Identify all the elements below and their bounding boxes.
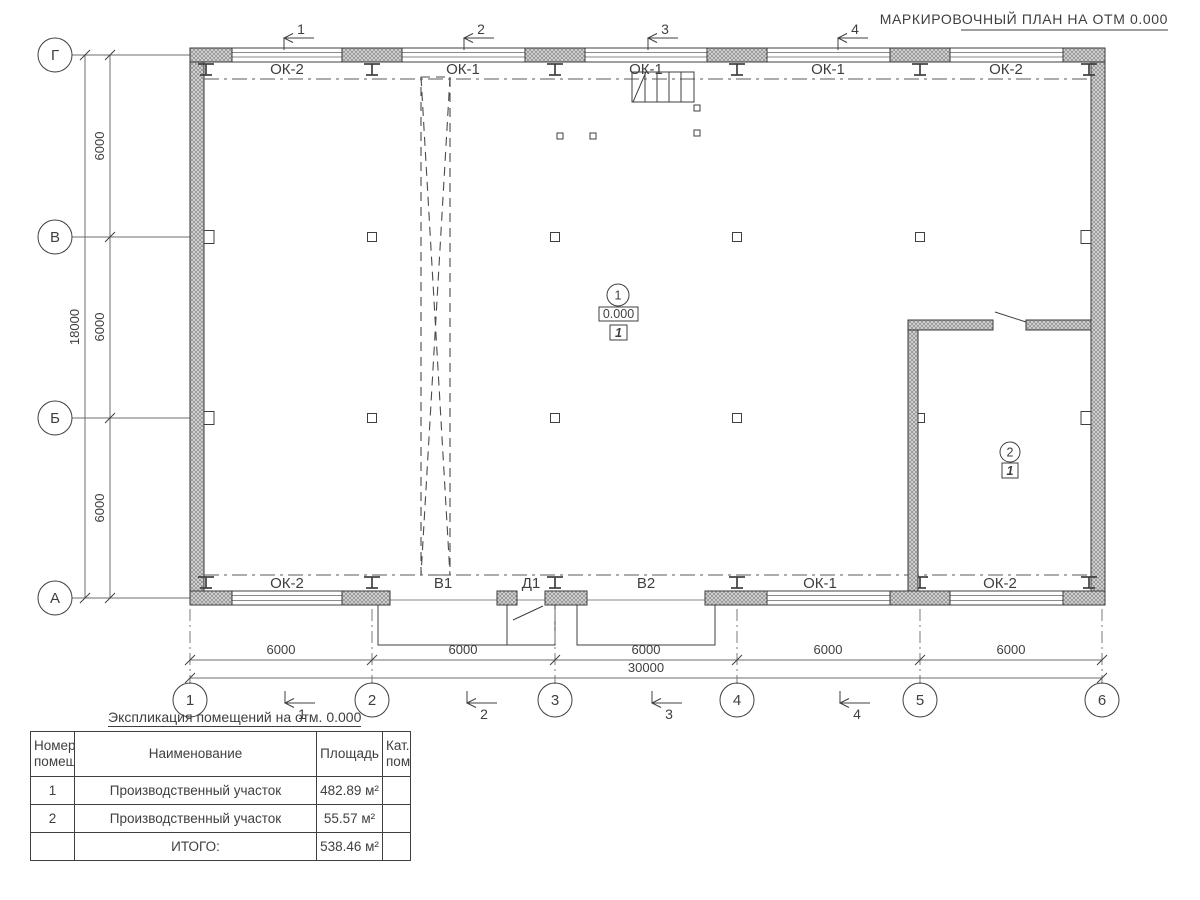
section-number: 4 (851, 21, 859, 37)
top-wall-piers (190, 48, 1105, 62)
dim-left-total: 18000 (67, 309, 82, 345)
loading-ramps (378, 605, 715, 645)
opening-label: ОК-2 (989, 61, 1023, 78)
col-header-category: Кат. пом. (383, 732, 411, 777)
partition-walls (908, 312, 1091, 591)
section-marker: 1 (284, 21, 314, 50)
axis-col-label-1: 1 (186, 692, 194, 709)
col-header-area: Площадь (317, 732, 383, 777)
ibeam-icon (364, 64, 380, 75)
floor-plan-sheet: МАРКИРОВОЧНЫЙ ПЛАН НА ОТМ 0.000 Г В Б А … (0, 0, 1200, 900)
opening-label: В2 (637, 575, 655, 592)
door-swing-line (513, 606, 543, 620)
opening-label: ОК-2 (270, 61, 304, 78)
opening-label: В1 (434, 575, 452, 592)
dim-bottom-0: 6000 (267, 642, 296, 657)
section-marker: 3 (652, 691, 682, 722)
col-header-number: Номер помещ. (31, 732, 75, 777)
section-number: 2 (480, 706, 488, 722)
bottom-dimensions: 6000 6000 6000 6000 6000 30000 (185, 609, 1107, 684)
cell-number-empty (31, 833, 75, 861)
opening-labels-bottom: ОК-2 В1 Д1 В2 ОК-1 ОК-2 (270, 575, 1017, 592)
axis-row-label-a: А (50, 590, 60, 607)
opening-label: ОК-1 (811, 61, 845, 78)
dim-bottom-2: 6000 (632, 642, 661, 657)
left-dimensions: 6000 6000 6000 18000 (67, 50, 115, 603)
cell-area: 55.57 м² (317, 805, 383, 833)
ibeam-icon (729, 64, 745, 75)
axis-col-label-4: 4 (733, 692, 741, 709)
col-header-name: Наименование (75, 732, 317, 777)
dim-bottom-total: 30000 (628, 660, 664, 675)
room-schedule-table: Номер помещ. Наименование Площадь Кат. п… (30, 731, 411, 861)
room-schedule: Номер помещ. Наименование Площадь Кат. п… (30, 731, 411, 861)
cell-name: Производственный участок (75, 777, 317, 805)
cell-name: Производственный участок (75, 805, 317, 833)
section-number: 3 (665, 706, 673, 722)
grid-row-axes: Г В Б А (38, 38, 190, 615)
section-number: 2 (477, 21, 485, 37)
table-header-row: Номер помещ. Наименование Площадь Кат. п… (31, 732, 411, 777)
dim-left-0: 6000 (92, 132, 107, 161)
zone-value: 1 (615, 326, 622, 340)
page-title: МАРКИРОВОЧНЫЙ ПЛАН НА ОТМ 0.000 (880, 10, 1168, 27)
cell-area: 482.89 м² (317, 777, 383, 805)
dim-left-1: 6000 (92, 313, 107, 342)
axis-col-label-5: 5 (916, 692, 924, 709)
cell-number: 2 (31, 805, 75, 833)
cell-category-empty (383, 833, 411, 861)
section-marker: 4 (838, 21, 868, 50)
interior-columns (368, 105, 925, 423)
opening-label: Д1 (522, 575, 541, 592)
table-row: 2 Производственный участок 55.57 м² (31, 805, 411, 833)
ibeam-icon (364, 577, 380, 588)
cell-category (383, 805, 411, 833)
dim-bottom-4: 6000 (997, 642, 1026, 657)
bottom-wall-band (190, 591, 1105, 605)
ibeam-icon (912, 64, 928, 75)
section-number: 4 (853, 706, 861, 722)
opening-label: ОК-2 (983, 575, 1017, 592)
axis-col-label-6: 6 (1098, 692, 1106, 709)
table-row: 1 Производственный участок 482.89 м² (31, 777, 411, 805)
dim-bottom-1: 6000 (449, 642, 478, 657)
door-swing-line (995, 312, 1026, 322)
total-label: ИТОГО: (75, 833, 317, 861)
room1-marker: 1 0.000 1 (599, 284, 638, 340)
cell-category (383, 777, 411, 805)
floor-plan-drawing: МАРКИРОВОЧНЫЙ ПЛАН НА ОТМ 0.000 Г В Б А … (0, 0, 1200, 730)
opening-label: ОК-1 (803, 575, 837, 592)
cell-number: 1 (31, 777, 75, 805)
table-total-row: ИТОГО: 538.46 м² (31, 833, 411, 861)
opening-label: ОК-2 (270, 575, 304, 592)
room-number: 2 (1007, 446, 1014, 460)
crane-bridge (421, 77, 450, 575)
axis-col-label-3: 3 (551, 692, 559, 709)
section-markers-top: 1 2 3 4 (284, 21, 868, 50)
section-marker: 3 (648, 21, 678, 50)
zone-value: 1 (1007, 464, 1014, 478)
window-labels-top: ОК-2 ОК-1 ОК-1 ОК-1 ОК-2 (270, 61, 1023, 78)
dim-bottom-3: 6000 (814, 642, 843, 657)
section-marker: 4 (840, 691, 870, 722)
axis-row-label-g: Г (51, 47, 59, 64)
section-marker: 2 (464, 21, 494, 50)
section-number: 3 (661, 21, 669, 37)
opening-label: ОК-1 (446, 61, 480, 78)
axis-row-label-v: В (50, 229, 60, 246)
bottom-wall-piers (190, 591, 1105, 605)
ibeam-icon (547, 577, 563, 588)
total-area: 538.46 м² (317, 833, 383, 861)
section-number: 1 (297, 21, 305, 37)
room2-marker: 2 1 (1000, 442, 1020, 478)
elevation-value: 0.000 (603, 307, 634, 321)
ibeam-icon (547, 64, 563, 75)
axis-row-label-b: Б (50, 410, 60, 427)
drawing-title: МАРКИРОВОЧНЫЙ ПЛАН НА ОТМ 0.000 (880, 10, 1168, 30)
right-wall (1091, 48, 1105, 605)
room-number: 1 (615, 289, 622, 303)
ibeam-icon (729, 577, 745, 588)
axis-col-label-2: 2 (368, 692, 376, 709)
left-wall (190, 48, 204, 605)
schedule-title: Экспликация помещений на отм. 0.000 (108, 709, 361, 727)
section-marker: 2 (467, 691, 497, 722)
opening-label: ОК-1 (629, 61, 663, 78)
dim-left-2: 6000 (92, 494, 107, 523)
